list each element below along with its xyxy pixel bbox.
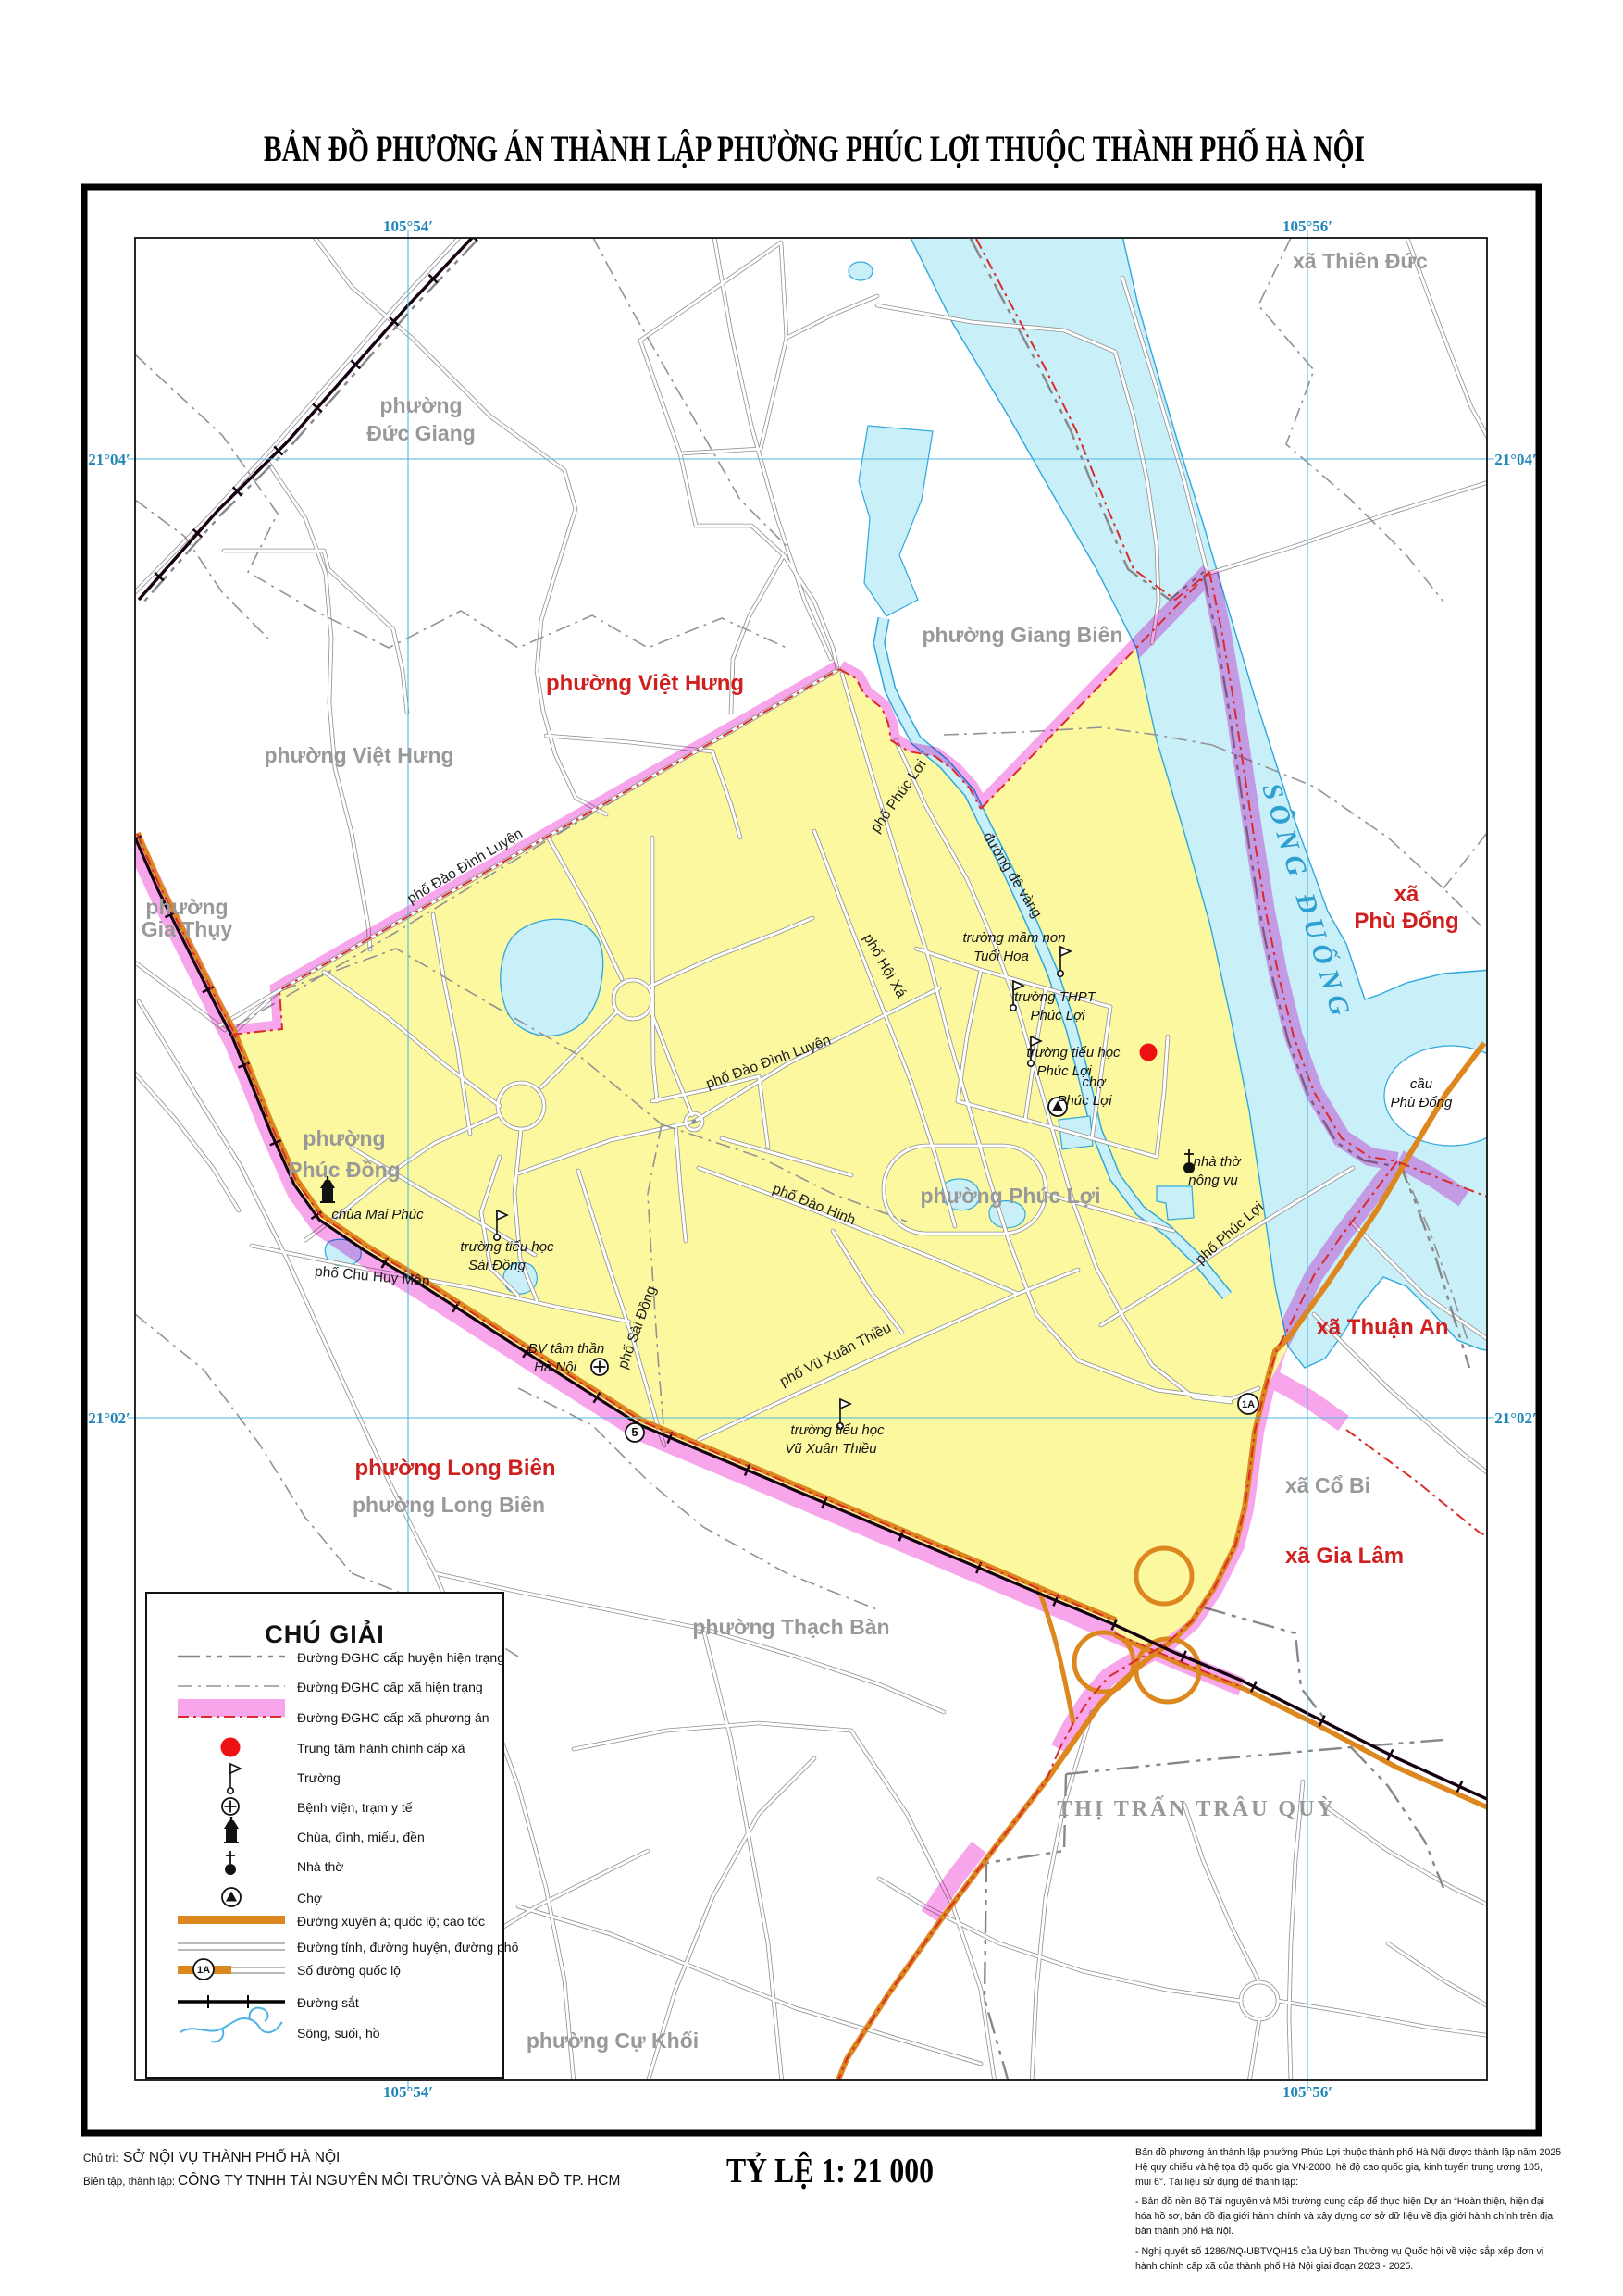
svg-text:phường Việt Hưng: phường Việt Hưng: [264, 743, 453, 767]
svg-text:CHÚ GIẢI: CHÚ GIẢI: [265, 1619, 385, 1648]
svg-text:trường tiểu học: trường tiểu học: [460, 1239, 554, 1255]
svg-text:Hệ quy chiếu và hệ tọa độ quốc: Hệ quy chiếu và hệ tọa độ quốc gia VN-20…: [1135, 2162, 1542, 2173]
svg-text:xã Gia Lâm: xã Gia Lâm: [1285, 1544, 1404, 1569]
svg-text:Hà Nội: Hà Nội: [534, 1359, 577, 1375]
svg-text:Đường ĐGHC cấp xã hiện trạng: Đường ĐGHC cấp xã hiện trạng: [297, 1680, 483, 1694]
svg-text:Trường: Trường: [297, 1770, 341, 1785]
svg-text:Sông, suối, hồ: Sông, suối, hồ: [297, 2026, 380, 2041]
svg-text:phường Cự Khối: phường Cự Khối: [527, 2029, 699, 2053]
svg-text:xã Cổ Bi: xã Cổ Bi: [1285, 1473, 1370, 1497]
svg-text:Phù Đổng: Phù Đổng: [1354, 909, 1458, 934]
svg-text:105°56′: 105°56′: [1282, 2083, 1332, 2101]
svg-text:21°04′: 21°04′: [1494, 451, 1537, 468]
svg-text:- Nghị quyết số 1286/NQ-UBTVQH: - Nghị quyết số 1286/NQ-UBTVQH15 của Uỷ …: [1135, 2245, 1543, 2257]
svg-text:trường mầm non: trường mầm non: [962, 930, 1065, 946]
svg-text:21°02′: 21°02′: [1494, 1409, 1537, 1427]
svg-text:xã Thuận An: xã Thuận An: [1316, 1315, 1448, 1340]
svg-text:Phúc Lợi: Phúc Lợi: [1057, 1093, 1112, 1109]
svg-text:1A: 1A: [197, 1965, 210, 1976]
svg-text:CÔNG TY TNHH TÀI NGUYÊN MÔI TR: CÔNG TY TNHH TÀI NGUYÊN MÔI TRƯỜNG VÀ BẢ…: [178, 2172, 620, 2189]
svg-text:hành chính cấp xã của thành ph: hành chính cấp xã của thành phố Hà Nội g…: [1135, 2261, 1413, 2272]
svg-text:Số đường quốc lộ: Số đường quốc lộ: [297, 1963, 401, 1978]
svg-text:Đường tỉnh, đường huyện, đường: Đường tỉnh, đường huyện, đường phố: [297, 1940, 519, 1955]
svg-text:xã: xã: [1394, 882, 1419, 907]
svg-text:nông vụ: nông vụ: [1188, 1173, 1238, 1188]
svg-text:Sài Đồng: Sài Đồng: [468, 1258, 526, 1273]
svg-text:cầu: cầu: [1410, 1076, 1433, 1092]
svg-text:Đường xuyên á; quốc lộ; cao tố: Đường xuyên á; quốc lộ; cao tốc: [297, 1914, 485, 1929]
svg-text:Nhà thờ: Nhà thờ: [297, 1859, 343, 1874]
svg-text:phường Việt Hưng: phường Việt Hưng: [546, 671, 744, 696]
svg-text:phường Long Biên: phường Long Biên: [353, 1493, 545, 1517]
svg-text:Tuổi Hoa: Tuổi Hoa: [973, 949, 1029, 964]
svg-text:21°02′: 21°02′: [88, 1409, 130, 1427]
svg-text:hóa hồ sơ, bản đồ địa giới hàn: hóa hồ sơ, bản đồ địa giới hành chính và…: [1135, 2211, 1553, 2222]
svg-text:phường: phường: [303, 1126, 385, 1150]
svg-text:THỊ TRẤN TRÂU QUỲ: THỊ TRẤN TRÂU QUỲ: [1057, 1796, 1336, 1821]
svg-text:105°54′: 105°54′: [383, 217, 433, 235]
svg-text:SỞ NỘI VỤ THÀNH PHỐ HÀ NỘI: SỞ NỘI VỤ THÀNH PHỐ HÀ NỘI: [123, 2149, 340, 2166]
svg-text:5: 5: [631, 1425, 638, 1439]
svg-text:BẢN ĐỒ PHƯƠNG ÁN THÀNH LẬP PHƯ: BẢN ĐỒ PHƯƠNG ÁN THÀNH LẬP PHƯỜNG PHÚC L…: [264, 127, 1365, 169]
svg-text:Bệnh viện, trạm y tế: Bệnh viện, trạm y tế: [297, 1800, 413, 1815]
svg-text:21°04′: 21°04′: [88, 451, 130, 468]
svg-text:phường Phúc Lợi: phường Phúc Lợi: [920, 1184, 1100, 1208]
svg-text:phường: phường: [145, 895, 228, 919]
svg-text:Phúc Lợi: Phúc Lợi: [1030, 1008, 1085, 1024]
svg-text:trường THPT: trường THPT: [1014, 989, 1097, 1005]
svg-text:105°56′: 105°56′: [1282, 217, 1332, 235]
svg-text:Chùa, đình, miếu, đền: Chùa, đình, miếu, đền: [297, 1830, 425, 1844]
svg-text:Gia Thụy: Gia Thụy: [142, 917, 233, 941]
svg-text:trường tiểu học: trường tiểu học: [1026, 1045, 1121, 1061]
svg-text:Vũ Xuân Thiều: Vũ Xuân Thiều: [785, 1441, 877, 1457]
svg-text:chùa Mai Phúc: chùa Mai Phúc: [331, 1207, 424, 1222]
svg-text:Biên tập, thành lập:: Biên tập, thành lập:: [83, 2177, 175, 2188]
svg-text:nhà thờ: nhà thờ: [1194, 1154, 1243, 1170]
svg-text:105°54′: 105°54′: [383, 2083, 433, 2101]
svg-text:Phúc Đồng: Phúc Đồng: [288, 1158, 400, 1182]
svg-text:trường tiểu học: trường tiểu học: [790, 1422, 885, 1438]
svg-text:phường Giang Biên: phường Giang Biên: [923, 623, 1123, 647]
svg-text:Chợ: Chợ: [297, 1891, 322, 1905]
svg-text:múi 6°. Tài liệu sử dụng để th: múi 6°. Tài liệu sử dụng để thành lập:: [1135, 2177, 1298, 2188]
svg-text:Đường sắt: Đường sắt: [297, 1995, 359, 2010]
svg-text:Đường ĐGHC cấp xã phương án: Đường ĐGHC cấp xã phương án: [297, 1710, 489, 1725]
svg-text:chợ: chợ: [1083, 1074, 1108, 1090]
svg-text:phường Long Biên: phường Long Biên: [354, 1456, 555, 1481]
svg-text:Phù Đổng: Phù Đổng: [1391, 1095, 1453, 1111]
svg-text:phường Thạch Bàn: phường Thạch Bàn: [692, 1615, 889, 1639]
svg-text:xã Thiên Đức: xã Thiên Đức: [1293, 249, 1428, 273]
svg-text:- Bản đồ nền Bộ Tài nguyên và: - Bản đồ nền Bộ Tài nguyên và Môi trường…: [1135, 2196, 1544, 2207]
svg-text:BV tâm thần: BV tâm thần: [528, 1341, 605, 1357]
svg-text:phường: phường: [379, 393, 462, 417]
svg-text:TỶ LỆ 1: 21 000: TỶ LỆ 1: 21 000: [726, 2152, 934, 2191]
svg-text:Trung tâm hành chính cấp xã: Trung tâm hành chính cấp xã: [297, 1741, 465, 1756]
svg-text:bàn thành phố Hà Nội.: bàn thành phố Hà Nội.: [1135, 2226, 1233, 2237]
svg-text:Chủ trì:: Chủ trì:: [83, 2153, 118, 2165]
svg-text:1A: 1A: [1242, 1399, 1255, 1410]
svg-text:Bản đồ phương án thành lập phư: Bản đồ phương án thành lập phường Phúc L…: [1135, 2147, 1561, 2158]
svg-text:Đường ĐGHC cấp huyện hiện trạn: Đường ĐGHC cấp huyện hiện trạng: [297, 1650, 504, 1665]
svg-text:Đức Giang: Đức Giang: [366, 421, 476, 445]
